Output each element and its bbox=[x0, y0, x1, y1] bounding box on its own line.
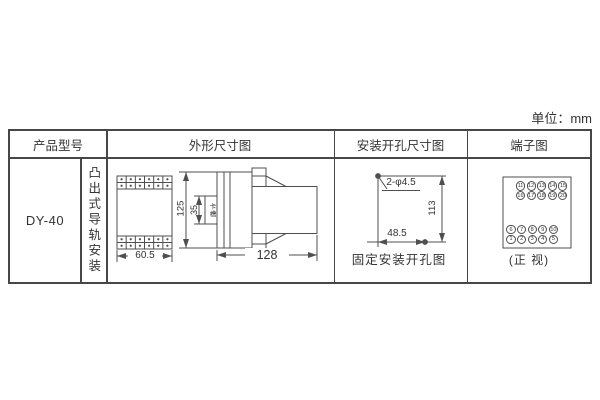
terminal-6: 6 bbox=[506, 225, 515, 234]
terminal-5: 5 bbox=[549, 235, 558, 244]
terminal-1: 1 bbox=[506, 235, 515, 244]
header-product-model: 产品型号 bbox=[10, 131, 106, 157]
mounting-caption: 固定安装开孔图 bbox=[333, 249, 465, 268]
header-terminal: 端子图 bbox=[468, 131, 590, 157]
header-outline: 外形尺寸图 bbox=[107, 131, 333, 157]
header-mounting-hole: 安装开孔尺寸图 bbox=[335, 131, 466, 157]
product-model-value: DY-40 bbox=[10, 159, 80, 282]
terminal-13: 13 bbox=[537, 181, 546, 190]
terminal-19: 19 bbox=[548, 191, 557, 200]
page: 单位：mm 产品型号 外形尺寸图 安装开孔尺寸图 端子图 DY-40 凸出式导轨… bbox=[0, 0, 600, 400]
terminal-3: 3 bbox=[528, 235, 537, 244]
dim-horizontal-distance: 48.5 bbox=[381, 228, 413, 240]
dim-slot-height: 35 bbox=[189, 197, 199, 223]
dim-vertical-distance: 113 bbox=[428, 195, 438, 221]
terminal-12: 12 bbox=[527, 181, 536, 190]
terminal-15: 15 bbox=[558, 181, 567, 190]
terminal-14: 14 bbox=[548, 181, 557, 190]
terminal-17: 17 bbox=[527, 191, 536, 200]
dim-holes: 2-φ4.5 bbox=[382, 177, 420, 191]
dim-total-height: 125 bbox=[176, 193, 187, 225]
dim-depth: 128 bbox=[245, 248, 289, 263]
terminal-caption: (正 视) bbox=[467, 251, 591, 268]
unit-label: 单位：mm bbox=[470, 108, 592, 127]
terminal-11: 11 bbox=[516, 181, 525, 190]
dim-front-width: 60.5 bbox=[128, 250, 162, 262]
slot-label: 卡槽 bbox=[206, 197, 217, 223]
mounting-style-text: 凸出式导轨安装 bbox=[87, 166, 100, 275]
mounting-style-cell: 凸出式导轨安装 bbox=[80, 159, 106, 282]
